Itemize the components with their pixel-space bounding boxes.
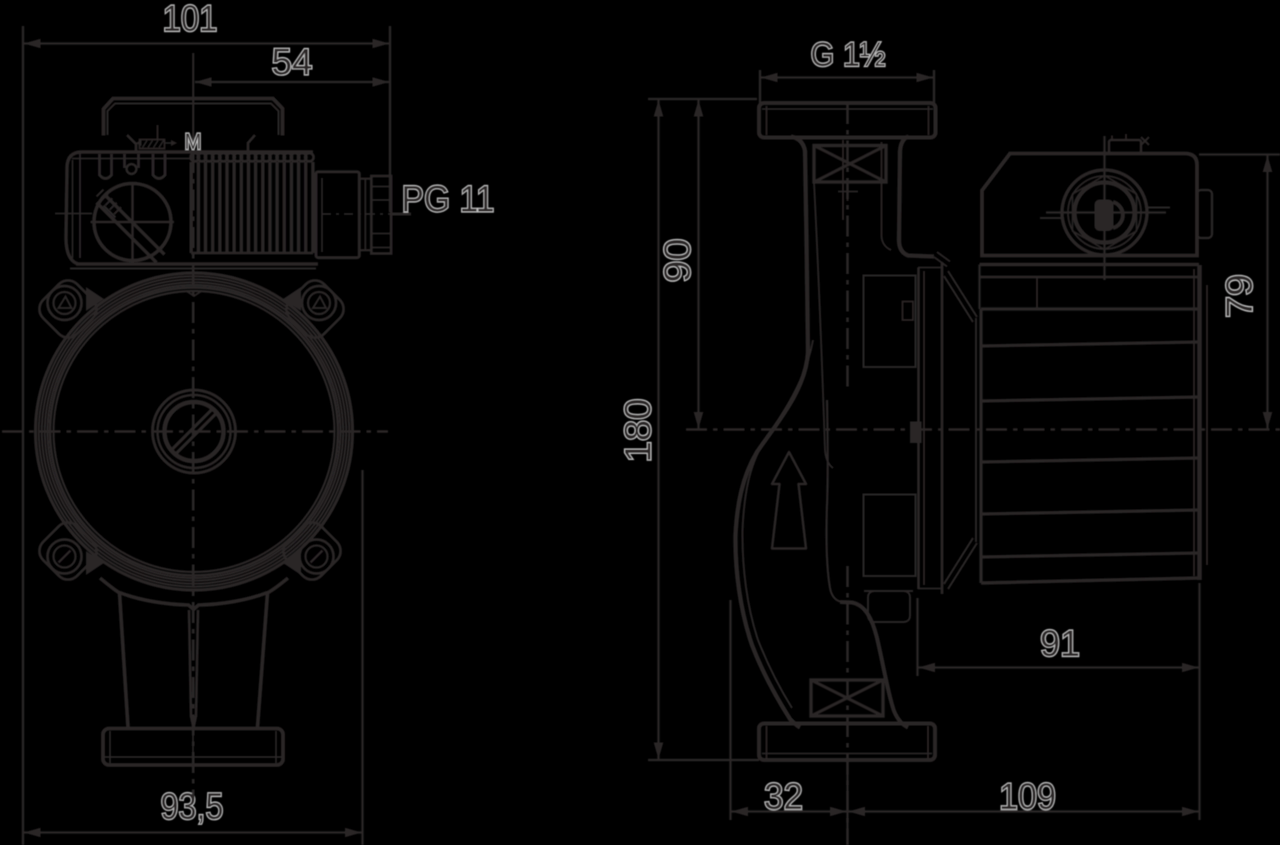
svg-text:101: 101	[163, 0, 218, 39]
svg-text:91: 91	[1040, 623, 1080, 664]
svg-text:54: 54	[272, 42, 313, 83]
svg-text:109: 109	[999, 776, 1056, 817]
svg-text:180: 180	[618, 399, 659, 463]
svg-text:M: M	[185, 129, 202, 154]
svg-text:79: 79	[1219, 274, 1260, 318]
svg-text:90: 90	[657, 239, 698, 283]
svg-text:PG 11: PG 11	[402, 179, 495, 220]
svg-text:32: 32	[764, 776, 803, 817]
svg-text:G 1½: G 1½	[811, 36, 886, 74]
